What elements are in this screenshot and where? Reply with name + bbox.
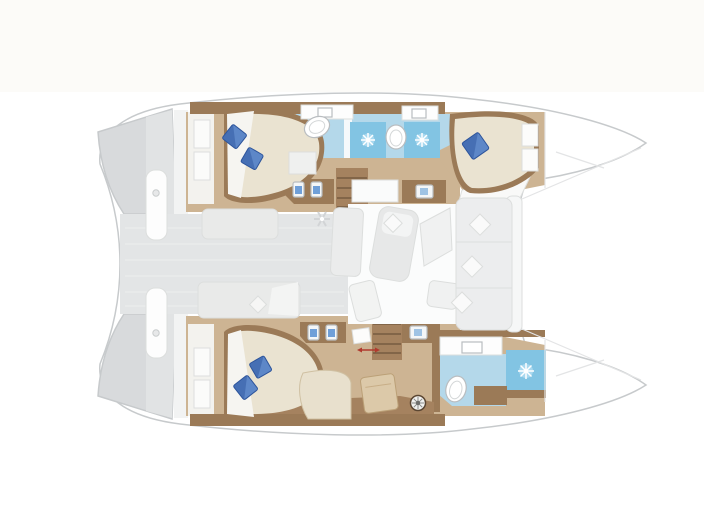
shower-jet-icon xyxy=(415,133,429,147)
hull-window-stbd-1 xyxy=(194,348,210,376)
toilet-icon xyxy=(386,125,406,149)
bow-storage-step-1 xyxy=(522,124,538,146)
hull-window-port-1 xyxy=(194,120,210,148)
hull-window-port-2 xyxy=(194,152,210,180)
plank-cleat xyxy=(153,190,159,196)
plank-cleat xyxy=(153,330,159,336)
sink-icon xyxy=(462,342,482,353)
sink-icon xyxy=(416,185,433,198)
sink-icon xyxy=(412,109,426,118)
galley-counter-stbd-left xyxy=(300,322,346,343)
owner-bathroom-counter xyxy=(474,386,507,405)
floor-plan-canvas xyxy=(0,0,704,528)
owner-shower-sill xyxy=(506,390,546,398)
sink-icon xyxy=(410,326,427,339)
shower-jet-icon xyxy=(361,133,375,147)
saloon-entry-door xyxy=(352,180,398,202)
saloon-bench-left xyxy=(330,207,364,276)
hull-window-stbd-2 xyxy=(194,380,210,408)
sink-icon xyxy=(326,325,337,340)
boarding-plank-starboard xyxy=(146,288,167,358)
owner-bathroom-wall xyxy=(432,330,440,412)
transom-bulkhead-starboard xyxy=(174,314,188,418)
forward-cockpit-bench xyxy=(451,196,522,332)
owner-side-table xyxy=(352,328,371,344)
sink-icon xyxy=(293,182,304,197)
owner-lounge-chaise xyxy=(300,370,351,419)
paper-tint-band xyxy=(0,0,704,92)
cockpit-bench-port xyxy=(202,209,278,239)
transom-bulkhead-port xyxy=(174,110,188,214)
sink-icon xyxy=(308,325,319,340)
sink-icon xyxy=(318,108,332,117)
port-bed-foot-bench xyxy=(289,152,316,174)
sink-icon xyxy=(311,182,322,197)
boarding-plank-port xyxy=(146,170,167,240)
helm-wheel-icon xyxy=(411,396,426,411)
screenshot-root xyxy=(0,0,704,528)
owner-bathroom-band xyxy=(440,330,545,337)
owner-lounge-ottoman xyxy=(360,373,399,413)
bow-storage-step-2 xyxy=(522,149,538,171)
